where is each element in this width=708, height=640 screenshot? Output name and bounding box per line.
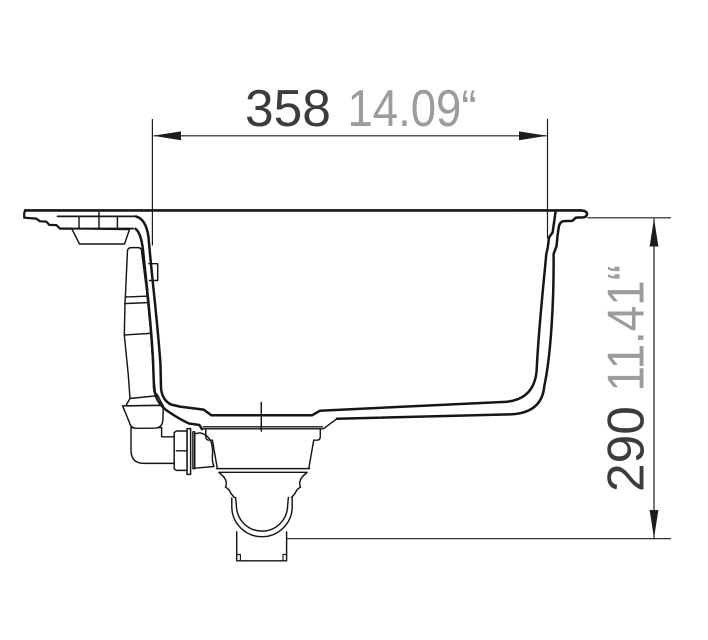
svg-text:290: 290 <box>597 406 655 492</box>
svg-text:11.41“: 11.41“ <box>597 265 655 392</box>
svg-text:358: 358 <box>245 79 331 137</box>
svg-text:14.09“: 14.09“ <box>348 79 477 137</box>
